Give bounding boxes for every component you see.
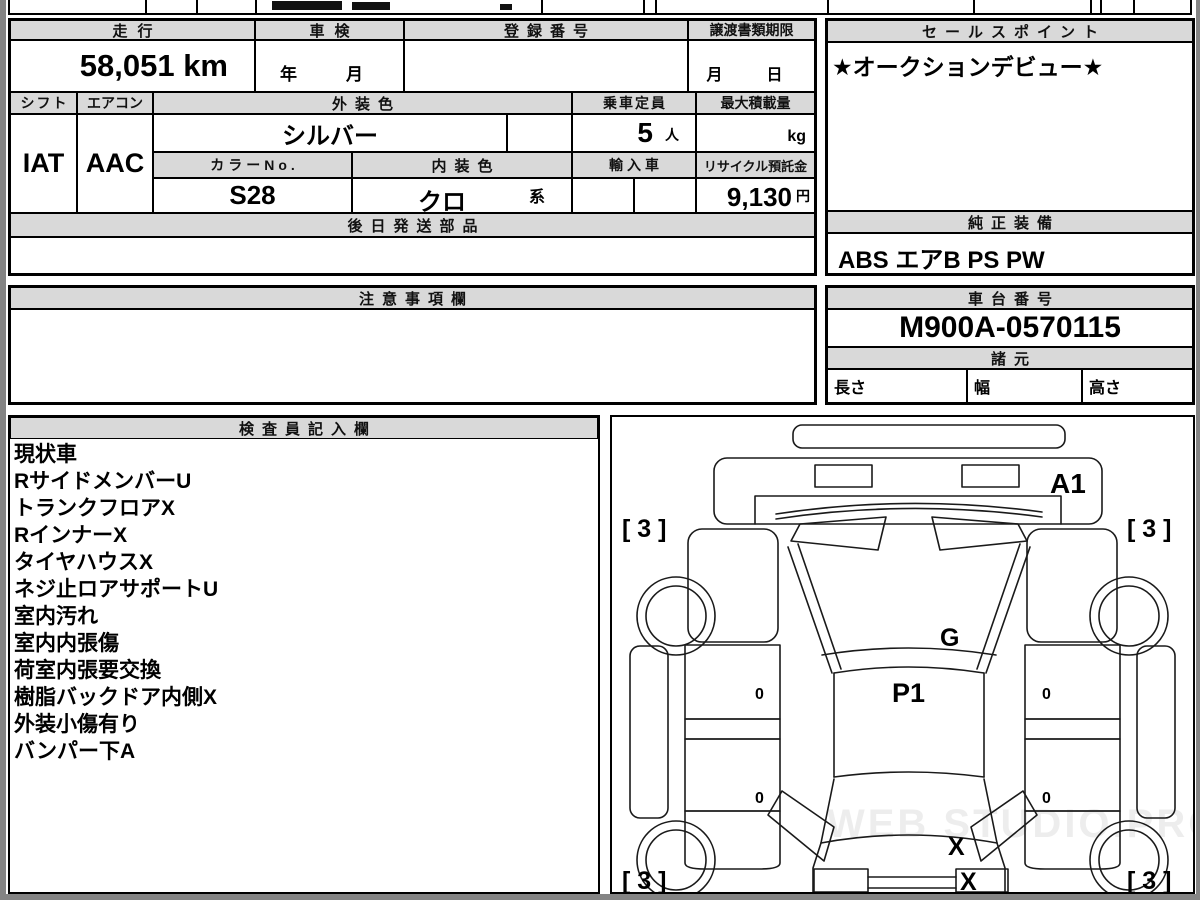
- wheel-front-left-inner: [646, 586, 706, 646]
- specs-header: 諸元: [827, 347, 1193, 369]
- truncated-top-row: [8, 0, 1192, 15]
- mark-corner-br: [ 3 ]: [1127, 867, 1171, 892]
- divider: [255, 0, 257, 13]
- sill-strip-left: [630, 646, 668, 818]
- interior-color-suffix: 系: [529, 183, 545, 207]
- notes-value: [10, 309, 815, 403]
- max-load-header: 最大積載量: [696, 92, 815, 114]
- rear-door-right: [1025, 739, 1120, 811]
- divider: [643, 0, 645, 13]
- notes-header: 注意事項欄: [10, 287, 815, 309]
- wiper-sweep-right: [932, 517, 1027, 550]
- cutoff-text-fragment: [352, 2, 390, 10]
- mark-a1: A1: [1050, 468, 1086, 499]
- registration-header: 登録番号: [404, 20, 688, 40]
- import-cell-1: [572, 178, 634, 213]
- divider: [196, 0, 198, 13]
- divider: [1090, 0, 1092, 13]
- front-bumper: [793, 425, 1065, 448]
- roof-top-arc: [834, 667, 984, 673]
- mileage-header: 走行: [10, 20, 255, 40]
- interior-color-value-cell: クロ 系: [352, 178, 572, 213]
- inspector-note-item: ネジ止ロアサポートU: [14, 576, 574, 603]
- divider: [655, 0, 657, 13]
- divider: [973, 0, 975, 13]
- capacity-value: 5: [637, 117, 653, 149]
- equipment-header: 純正装備: [827, 211, 1193, 233]
- front-door-left: [685, 645, 780, 719]
- exterior-color-header: 外装色: [153, 92, 572, 114]
- hood: [714, 458, 1102, 524]
- car-diagram: WEB STUDIO.PRO: [612, 417, 1193, 892]
- inspector-header: 検査員記入欄: [10, 417, 598, 439]
- divider: [1190, 0, 1192, 13]
- inspector-note-item: 外装小傷有り: [14, 711, 574, 738]
- door-handle-mark: 0: [755, 686, 764, 703]
- sales-point-box: セールスポイント ★オークションデビュー★ 純正装備 ABS エアB PS PW: [825, 18, 1195, 276]
- recycle-deposit-unit: 円: [796, 186, 810, 206]
- divider: [827, 0, 829, 13]
- cutoff-text-fragment: [500, 4, 512, 10]
- registration-value: [404, 40, 688, 92]
- max-load-value-cell: kg: [696, 114, 815, 152]
- wheel-front-right: [1090, 577, 1168, 655]
- capacity-header: 乗車定員: [572, 92, 696, 114]
- wheel-front-right-inner: [1099, 586, 1159, 646]
- notes-box: 注意事項欄: [8, 285, 817, 405]
- color-no-header: カラーNo.: [153, 152, 352, 178]
- shaken-value: 年 月: [255, 40, 404, 92]
- auction-sheet: 走行 車検 登録番号 譲渡書類期限 58,051 km 年 月 月 日 シフト …: [0, 0, 1200, 900]
- door-handle-mark: 0: [755, 790, 764, 807]
- inspector-note-item: 樹脂バックドア内側X: [14, 684, 574, 711]
- mark-g: G: [940, 624, 959, 652]
- inspector-note-item: RインナーX: [14, 522, 574, 549]
- later-parts-header: 後日発送部品: [10, 213, 815, 237]
- interior-color-value: クロ: [353, 182, 531, 213]
- car-diagram-box: WEB STUDIO.PRO: [610, 415, 1195, 894]
- headlight-left: [815, 465, 872, 487]
- headlight-right: [962, 465, 1019, 487]
- later-parts-value: [10, 237, 815, 274]
- inspector-notes-list: 現状車 RサイドメンバーU トランクフロアX RインナーX タイヤハウスX ネジ…: [14, 441, 574, 765]
- sill-strip-right: [1137, 646, 1175, 818]
- divider: [8, 0, 10, 13]
- tailgate-panel-left: [814, 869, 868, 892]
- aircon-value: AAC: [77, 114, 153, 213]
- chassis-header: 車台番号: [827, 287, 1193, 309]
- inspector-note-item: RサイドメンバーU: [14, 468, 574, 495]
- mark-corner-tl: [ 3 ]: [622, 515, 666, 543]
- exterior-color-extra-cell: [507, 114, 572, 152]
- mark-x-tailgate: X: [960, 868, 977, 892]
- divider: [145, 0, 147, 13]
- pillar-band-left: [685, 719, 780, 739]
- inspector-note-item: 荷室内張要交換: [14, 657, 574, 684]
- a-pillar-right-inner: [977, 544, 1020, 669]
- import-header: 輸入車: [572, 152, 696, 178]
- windshield-base-arc: [822, 648, 996, 655]
- divider: [541, 0, 543, 13]
- height-label: 高さ: [1082, 369, 1193, 403]
- roof-bottom-arc: [834, 772, 984, 777]
- recycle-deposit-header: リサイクル預託金: [696, 152, 815, 178]
- divider: [1133, 0, 1135, 13]
- mark-corner-tr: [ 3 ]: [1127, 515, 1171, 543]
- max-load-unit: kg: [787, 128, 806, 146]
- sales-point-header: セールスポイント: [827, 20, 1193, 42]
- capacity-unit: 人: [665, 125, 679, 145]
- aircon-header: エアコン: [77, 92, 153, 114]
- transfer-deadline-value: 月 日: [688, 40, 815, 92]
- shift-value: IAT: [10, 114, 77, 213]
- sales-point-value: ★オークションデビュー★: [827, 42, 1193, 211]
- interior-color-header: 内装色: [352, 152, 572, 178]
- recycle-deposit-value: 9,130: [727, 182, 792, 213]
- door-handle-mark: 0: [1042, 686, 1051, 703]
- door-handle-mark: 0: [1042, 790, 1051, 807]
- shift-header: シフト: [10, 92, 77, 114]
- rear-door-left: [685, 739, 780, 811]
- shaken-header: 車検: [255, 20, 404, 40]
- front-door-right: [1025, 645, 1120, 719]
- inspector-note-item: 室内内張傷: [14, 630, 574, 657]
- width-label: 幅: [967, 369, 1082, 403]
- capacity-value-cell: 5 人: [572, 114, 696, 152]
- wiper-sweep-left: [791, 517, 886, 550]
- pillar-band-right: [1025, 719, 1120, 739]
- wiper-arc: [776, 508, 1042, 519]
- inspector-note-item: トランクフロアX: [14, 495, 574, 522]
- watermark: WEB STUDIO.PRO: [827, 802, 1193, 846]
- mark-x-rear-window: X: [948, 833, 965, 861]
- tailgate-bar: [868, 877, 956, 888]
- mark-p1: P1: [892, 678, 925, 708]
- inspector-note-item: 室内汚れ: [14, 603, 574, 630]
- chassis-box: 車台番号 M900A-0570115 諸元 長さ 幅 高さ: [825, 285, 1195, 405]
- transfer-deadline-header: 譲渡書類期限: [688, 20, 815, 40]
- import-cell-2: [634, 178, 696, 213]
- chassis-value: M900A-0570115: [827, 309, 1193, 347]
- recycle-deposit-value-cell: 9,130 円: [696, 178, 815, 213]
- equipment-value: ABS エアB PS PW: [827, 233, 1193, 274]
- a-pillar-left-inner: [798, 544, 841, 669]
- exterior-color-value: シルバー: [153, 114, 507, 152]
- cutoff-text-fragment: [272, 1, 342, 10]
- divider: [1100, 0, 1102, 13]
- mileage-value: 58,051 km: [10, 40, 255, 92]
- tailgate-right: [997, 843, 1005, 892]
- main-spec-table: 走行 車検 登録番号 譲渡書類期限 58,051 km 年 月 月 日 シフト …: [8, 18, 817, 276]
- mark-corner-bl: [ 3 ]: [622, 867, 666, 892]
- color-no-value: S28: [153, 178, 352, 213]
- length-label: 長さ: [827, 369, 967, 403]
- inspector-note-item: バンパー下A: [14, 738, 574, 765]
- wheel-front-left: [637, 577, 715, 655]
- inspector-note-item: 現状車: [14, 441, 574, 468]
- inspector-note-item: タイヤハウスX: [14, 549, 574, 576]
